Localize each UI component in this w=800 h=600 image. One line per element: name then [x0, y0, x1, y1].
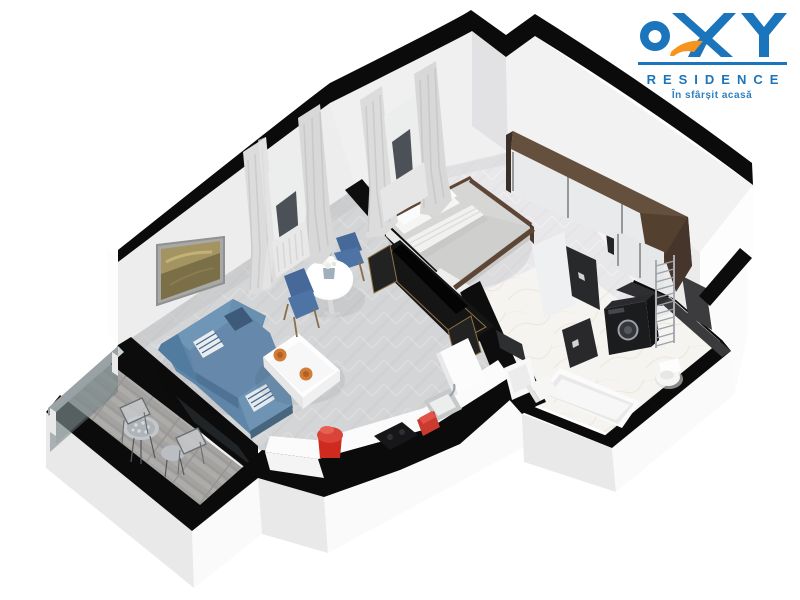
svg-text:În sfârșit acasă: În sfârșit acasă	[671, 88, 752, 101]
svg-text:RESIDENCE: RESIDENCE	[647, 72, 786, 87]
